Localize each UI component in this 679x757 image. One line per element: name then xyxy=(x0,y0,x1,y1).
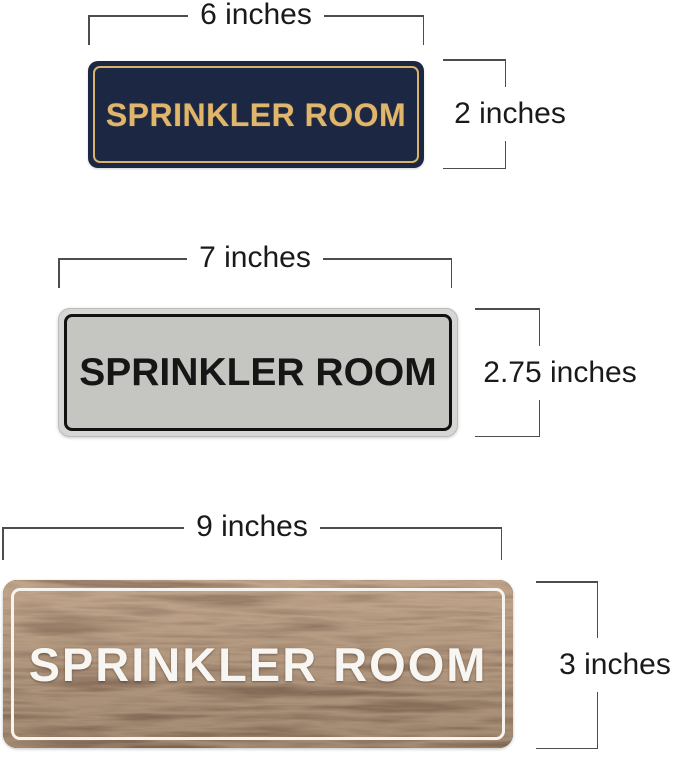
navy-gold-sign: SPRINKLER ROOM xyxy=(88,61,424,168)
height-dimension-label: 2 inches xyxy=(454,97,566,132)
dimension-line xyxy=(597,692,599,749)
width-dimension-label: 9 inches xyxy=(184,510,320,545)
width-dimension-label: 7 inches xyxy=(187,241,323,276)
dimension-line xyxy=(536,581,598,583)
width-dimension-bracket-silver: 7 inches xyxy=(58,258,452,293)
dimension-line xyxy=(597,581,599,638)
silver-black-sign: SPRINKLER ROOM xyxy=(58,308,458,437)
dimension-line xyxy=(505,59,507,87)
dimension-line xyxy=(539,400,541,438)
height-dimension-label: 2.75 inches xyxy=(483,355,636,390)
dimension-line xyxy=(536,748,598,750)
dimension-line xyxy=(58,258,187,260)
dimension-line xyxy=(320,527,502,529)
width-dimension-bracket-navy: 6 inches xyxy=(88,15,424,50)
height-dimension-bracket-wood: 3 inches xyxy=(536,581,598,749)
height-dimension-bracket-silver: 2.75 inches xyxy=(475,308,540,437)
dimension-line xyxy=(443,168,506,170)
product-dimensions-image: 6 inches SPRINKLER ROOM 2 inches 7 inche… xyxy=(0,0,679,757)
height-dimension-label: 3 inches xyxy=(559,648,671,683)
dimension-line xyxy=(2,527,184,529)
dimension-line xyxy=(505,141,507,169)
width-dimension-bracket-wood: 9 inches xyxy=(2,527,502,562)
width-dimension-label: 6 inches xyxy=(188,0,324,32)
sign-label: SPRINKLER ROOM xyxy=(88,61,424,168)
dimension-line xyxy=(324,15,424,17)
dimension-line xyxy=(475,436,540,438)
dimension-line xyxy=(323,258,452,260)
dimension-line xyxy=(539,308,541,346)
dimension-line xyxy=(88,15,188,17)
dimension-line xyxy=(443,59,506,61)
walnut-wood-sign: SPRINKLER ROOM xyxy=(3,580,513,748)
sign-label: SPRINKLER ROOM xyxy=(3,580,513,748)
sign-label: SPRINKLER ROOM xyxy=(58,308,458,437)
height-dimension-bracket-navy: 2 inches xyxy=(443,59,506,169)
dimension-line xyxy=(475,308,540,310)
